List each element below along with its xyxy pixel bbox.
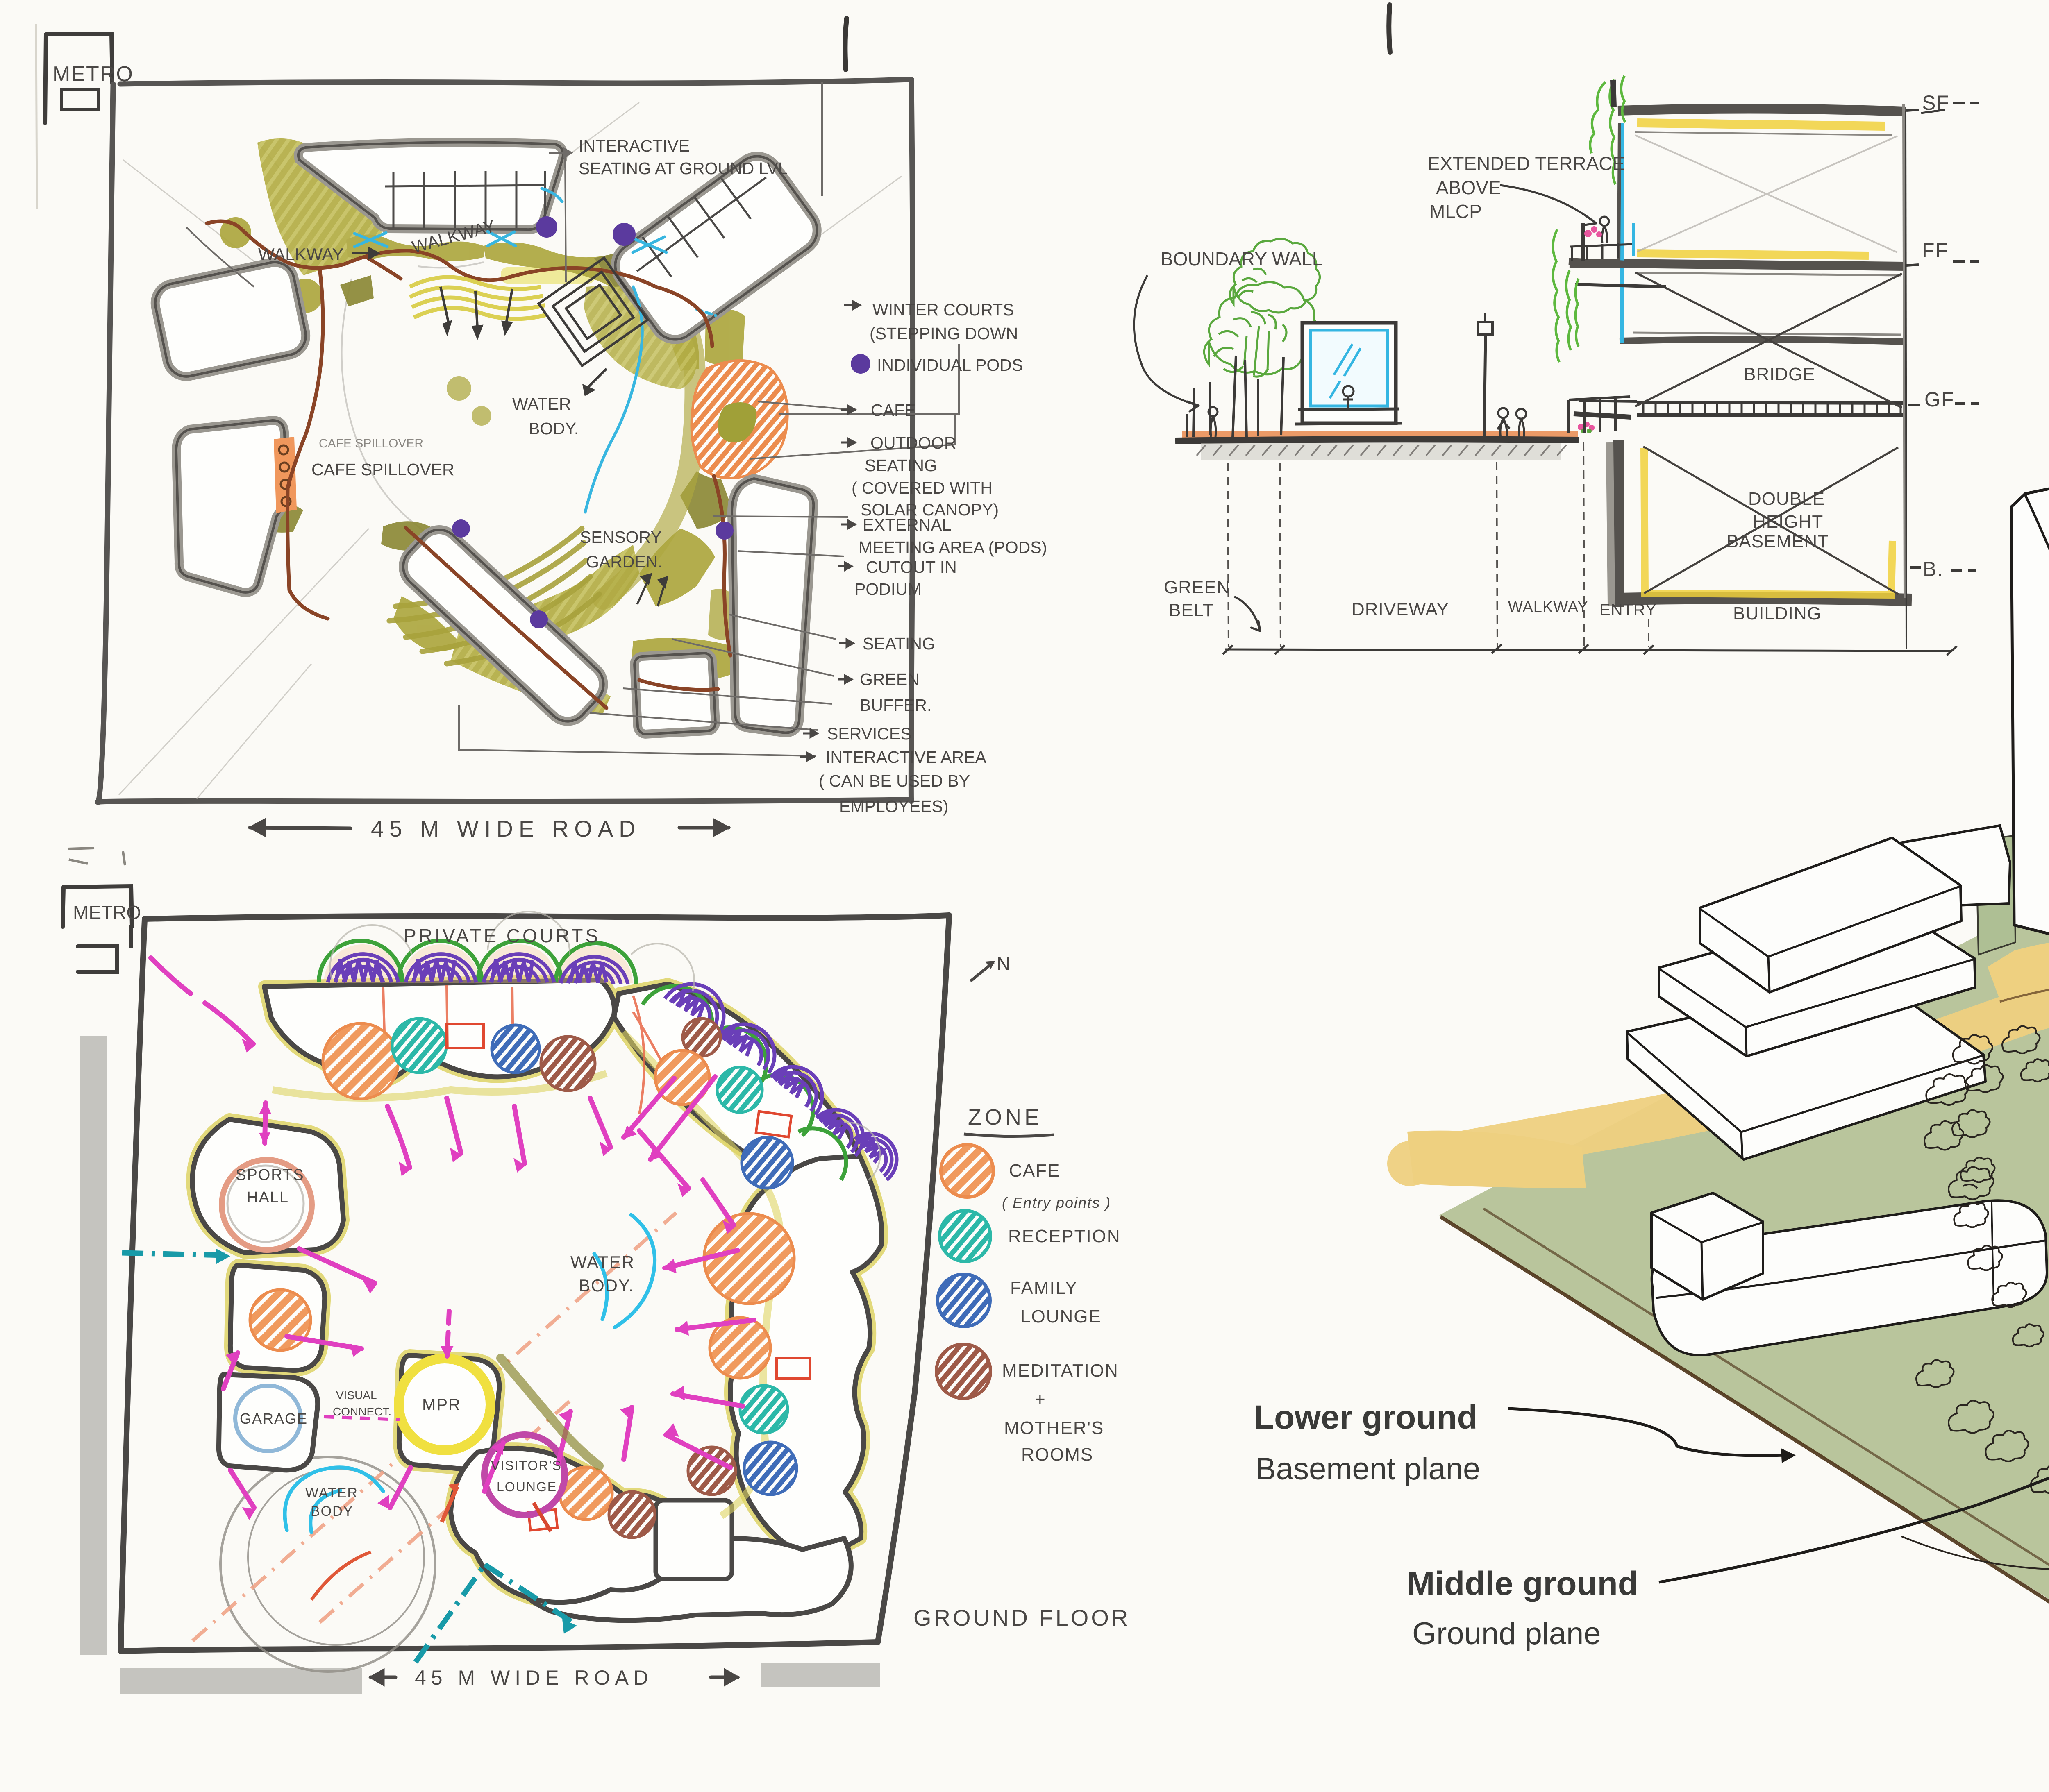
svg-text:OUTDOOR: OUTDOOR bbox=[870, 433, 956, 452]
svg-text:BUFFER.: BUFFER. bbox=[860, 696, 931, 715]
svg-text:GREEN: GREEN bbox=[1164, 577, 1230, 597]
svg-text:VISUAL: VISUAL bbox=[336, 1389, 377, 1402]
svg-text:SENSORY: SENSORY bbox=[580, 528, 662, 547]
svg-text:BODY: BODY bbox=[311, 1504, 353, 1519]
svg-text:BRIDGE: BRIDGE bbox=[1744, 364, 1815, 384]
svg-text:EMPLOYEES): EMPLOYEES) bbox=[839, 797, 949, 816]
svg-text:BASEMENT: BASEMENT bbox=[1726, 531, 1829, 551]
svg-text:B.: B. bbox=[1923, 558, 1944, 581]
svg-text:(STEPPING DOWN: (STEPPING DOWN bbox=[870, 324, 1018, 343]
svg-text:WALKWAY: WALKWAY bbox=[258, 245, 343, 264]
svg-text:CAFE: CAFE bbox=[1009, 1161, 1060, 1181]
svg-text:GREEN: GREEN bbox=[860, 670, 920, 689]
svg-text:BODY.: BODY. bbox=[579, 1276, 634, 1295]
svg-text:BOUNDARY WALL: BOUNDARY WALL bbox=[1161, 248, 1322, 270]
svg-text:MLCP: MLCP bbox=[1429, 201, 1482, 222]
svg-text:ROOMS: ROOMS bbox=[1021, 1445, 1093, 1465]
svg-text:MEETING AREA (PODS): MEETING AREA (PODS) bbox=[859, 538, 1047, 557]
svg-text:WATER: WATER bbox=[570, 1252, 635, 1272]
svg-text:LOUNGE: LOUNGE bbox=[497, 1479, 557, 1494]
svg-text:CAFE SPILLOVER: CAFE SPILLOVER bbox=[311, 460, 454, 479]
svg-text:Basement plane: Basement plane bbox=[1255, 1452, 1480, 1486]
svg-text:+: + bbox=[1035, 1389, 1046, 1409]
svg-text:( COVERED WITH: ( COVERED WITH bbox=[852, 479, 993, 497]
svg-text:METRO: METRO bbox=[73, 902, 141, 923]
svg-text:GROUND FLOOR: GROUND FLOOR bbox=[913, 1605, 1130, 1631]
svg-text:ZONE: ZONE bbox=[968, 1105, 1043, 1130]
svg-text:MPR: MPR bbox=[422, 1396, 461, 1414]
svg-text:( CAN BE USED BY: ( CAN BE USED BY bbox=[819, 771, 970, 790]
svg-text:RECEPTION: RECEPTION bbox=[1008, 1226, 1121, 1246]
svg-text:CAFE: CAFE bbox=[871, 401, 915, 420]
svg-text:WINTER COURTS: WINTER COURTS bbox=[872, 300, 1014, 319]
svg-text:WATER: WATER bbox=[512, 395, 571, 413]
svg-text:SERVICES: SERVICES bbox=[827, 724, 912, 743]
svg-text:( Entry points ): ( Entry points ) bbox=[1002, 1194, 1111, 1211]
svg-text:GF: GF bbox=[1924, 388, 1954, 411]
svg-text:SEATING: SEATING bbox=[865, 456, 937, 475]
svg-text:INDIVIDUAL PODS: INDIVIDUAL PODS bbox=[877, 356, 1023, 374]
svg-text:CAFE SPILLOVER: CAFE SPILLOVER bbox=[319, 437, 423, 450]
svg-text:MOTHER'S: MOTHER'S bbox=[1004, 1418, 1104, 1438]
svg-text:SPORTS: SPORTS bbox=[236, 1166, 304, 1184]
svg-text:ENTRY: ENTRY bbox=[1599, 601, 1657, 619]
svg-text:PRIVATE COURTS: PRIVATE COURTS bbox=[404, 925, 600, 946]
svg-text:EXTENDED TERRACE: EXTENDED TERRACE bbox=[1427, 153, 1625, 174]
svg-text:PODIUM: PODIUM bbox=[854, 580, 922, 599]
svg-text:LOUNGE: LOUNGE bbox=[1020, 1307, 1102, 1327]
svg-text:GARDEN.: GARDEN. bbox=[586, 552, 663, 571]
svg-text:WATER: WATER bbox=[305, 1485, 358, 1501]
svg-text:Middle ground: Middle ground bbox=[1407, 1565, 1638, 1602]
svg-text:CONNECT.: CONNECT. bbox=[333, 1405, 391, 1418]
svg-text:ABOVE: ABOVE bbox=[1436, 177, 1501, 198]
svg-text:WALKWAY: WALKWAY bbox=[1508, 599, 1588, 616]
svg-text:HALL: HALL bbox=[247, 1189, 289, 1206]
svg-text:BUILDING: BUILDING bbox=[1733, 603, 1822, 624]
svg-text:SEATING: SEATING bbox=[863, 634, 935, 653]
svg-text:INTERACTIVE: INTERACTIVE bbox=[579, 136, 690, 155]
svg-text:N: N bbox=[997, 953, 1010, 974]
svg-text:DRIVEWAY: DRIVEWAY bbox=[1352, 599, 1449, 619]
svg-text:FAMILY: FAMILY bbox=[1010, 1278, 1078, 1298]
svg-text:MEDITATION: MEDITATION bbox=[1002, 1361, 1119, 1381]
svg-text:45 M WIDE ROAD: 45 M WIDE ROAD bbox=[415, 1666, 653, 1689]
svg-text:GARAGE: GARAGE bbox=[240, 1410, 308, 1427]
svg-text:Lower ground: Lower ground bbox=[1254, 1399, 1478, 1436]
svg-text:HEIGHT: HEIGHT bbox=[1753, 512, 1823, 532]
svg-text:BELT: BELT bbox=[1169, 600, 1214, 620]
svg-text:Ground plane: Ground plane bbox=[1412, 1616, 1601, 1651]
svg-text:CUTOUT IN: CUTOUT IN bbox=[866, 558, 957, 576]
svg-text:EXTERNAL: EXTERNAL bbox=[863, 515, 951, 534]
svg-text:INTERACTIVE AREA: INTERACTIVE AREA bbox=[826, 748, 987, 767]
svg-text:SEATING AT GROUND LVL: SEATING AT GROUND LVL bbox=[579, 159, 788, 178]
svg-text:BODY.: BODY. bbox=[529, 419, 579, 438]
svg-text:VISITOR'S: VISITOR'S bbox=[491, 1458, 562, 1473]
svg-text:FF: FF bbox=[1922, 239, 1949, 262]
svg-text:DOUBLE: DOUBLE bbox=[1748, 489, 1825, 509]
svg-text:45 M WIDE ROAD: 45 M WIDE ROAD bbox=[371, 816, 641, 842]
